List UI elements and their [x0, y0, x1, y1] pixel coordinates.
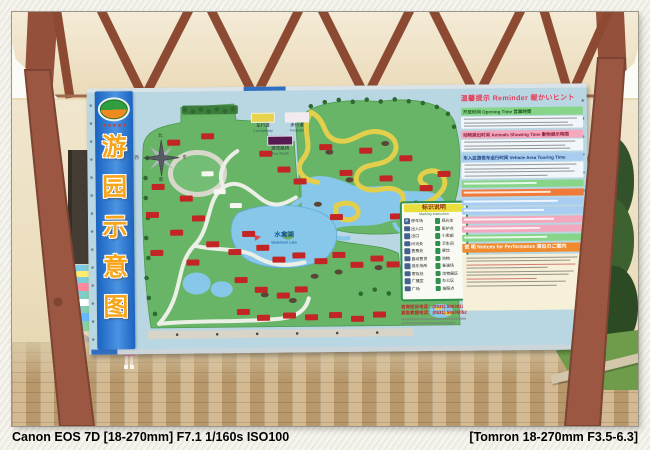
tour-route-swatch: [267, 135, 293, 145]
carriageway-entry: 车行道 Carriageway: [251, 113, 275, 133]
title-char: 园: [95, 167, 133, 207]
legend-item: 问讯处: [411, 240, 434, 246]
photo-page: { "photo_caption": { "left": "Canon EOS …: [0, 0, 650, 450]
title-char: 意: [96, 247, 134, 287]
legend-item: 出口: [411, 233, 434, 239]
text-bar: [401, 318, 466, 321]
legend-item: 自动售货: [411, 255, 434, 261]
reminder-band: [462, 179, 584, 187]
legend-item: 表演场: [442, 263, 465, 269]
legend-icon: [435, 248, 441, 254]
legend-item: 办公区: [442, 278, 465, 284]
park-logo-icon: [98, 97, 130, 121]
footpath-swatch: [285, 112, 309, 122]
legend-item: 医护点: [442, 225, 465, 231]
reminder-band: [462, 188, 584, 196]
road-type-legend: 车行道 Carriageway 步行道 Footpath 游览路线 Tour R…: [237, 112, 323, 156]
reminder-title: 温馨提示 Reminder 暖かいヒント: [461, 91, 583, 105]
legend-item: 餐饮: [442, 248, 465, 254]
reminder-band: [462, 215, 584, 223]
reminder-band: [462, 233, 584, 241]
legend-icon: [435, 278, 441, 284]
compass-rose: 北 南 东 西: [141, 138, 181, 178]
footpath-label-en: Footpath: [285, 128, 309, 132]
reminder-section-header: 开放时间 Opening Time 営業時間: [461, 106, 583, 115]
photograph: 水禽湖 Waterfowl Lake 游 园 示 意 图 北 南 东 西: [12, 12, 638, 426]
legend-item: 出入口: [411, 225, 434, 231]
title-char: 示: [96, 207, 134, 247]
legend-item: 游乐场所: [411, 263, 434, 269]
camera-exif-caption: Canon EOS 7D [18-270mm] F7.1 1/160s ISO1…: [12, 430, 289, 444]
tour-route-entry: 游览路线 Tour Route: [237, 135, 323, 156]
carriageway-swatch: [251, 113, 275, 123]
title-char: 图: [97, 287, 135, 327]
reminder-section-body: [461, 161, 583, 178]
compass-west-label: 西: [134, 155, 139, 161]
reminder-band: [462, 197, 584, 205]
legend-item: 拍照点: [442, 285, 465, 291]
reminder-section-body: [461, 138, 583, 151]
legend-icon: [404, 241, 410, 247]
compass-south-label: 南: [159, 177, 164, 183]
legend-icon: [404, 263, 410, 269]
reminder-band: [462, 206, 584, 214]
marking-legend-box: 标识说明 Marking Instruction P停车场 观光车 出入口 医护…: [400, 201, 469, 302]
compass-north-label: 北: [158, 133, 163, 139]
compass-star: [141, 138, 181, 178]
carriageway-label-en: Carriageway: [251, 129, 275, 133]
lake-label: 水禽湖: [274, 229, 294, 238]
legend-item: 购物: [442, 255, 465, 261]
marking-legend-grid: P停车场 观光车 出入口 医护点 出口 小卖部 问讯处 卫生间 售票处 餐饮 自…: [404, 218, 465, 292]
lens-caption: [Tomron 18-270mm F3.5-6.3]: [469, 430, 638, 444]
legend-item: 广场: [412, 285, 435, 291]
reminder-band: [462, 224, 584, 232]
legend-item: 观光车: [441, 218, 464, 224]
child-shoe: [124, 365, 128, 369]
reminder-section-header: 车入区游览车运行时间 Vehicle Area Touring Time: [461, 152, 583, 161]
lake-label-en: Waterfowl Lake: [271, 240, 297, 244]
parking-icon: P: [404, 218, 410, 224]
legend-item: 小卖部: [442, 233, 465, 239]
legend-icon: [404, 256, 410, 262]
legend-item: 动物展区: [442, 270, 465, 276]
title-banner: 游 园 示 意 图: [95, 91, 136, 349]
reminder-panel: 温馨提示 Reminder 暖かいヒント 开放时间 Opening Time 営…: [461, 91, 586, 344]
legend-item: 卫生间: [442, 240, 465, 246]
distant-sign: [598, 246, 608, 263]
legend-item: 售票处: [411, 248, 434, 254]
legend-item: 寄存处: [412, 270, 435, 276]
legend-icon: [435, 240, 441, 246]
legend-icon: [435, 270, 441, 276]
legend-icon: [405, 278, 411, 284]
legend-icon: [435, 285, 441, 291]
legend-icon: [435, 233, 441, 239]
bottom-road: [147, 328, 413, 339]
legend-icon: [405, 286, 411, 292]
legend-icon: [434, 218, 440, 224]
paved-ground: [12, 342, 638, 426]
legend-icon: [404, 233, 410, 239]
legend-item: 广播室: [412, 278, 435, 284]
legend-icon: [435, 225, 441, 231]
legend-item: 停车场: [411, 218, 434, 224]
legend-icon: [404, 226, 410, 232]
park-map-board: 水禽湖 Waterfowl Lake 游 园 示 意 图 北 南 东 西: [87, 83, 590, 354]
marking-legend-subtitle: Marking Instruction: [404, 212, 464, 217]
legend-icon: [404, 248, 410, 254]
legend-icon: [435, 255, 441, 261]
title-char: 游: [95, 127, 133, 167]
reminder-section-body: [461, 115, 583, 128]
reminder-section-header: 动物展出时间 Animals Showing Time 動物展示時間: [461, 129, 583, 138]
footpath-entry: 步行道 Footpath: [285, 112, 309, 132]
text-bar: [401, 322, 455, 325]
legend-icon: [405, 271, 411, 277]
compass-east-label: 东: [182, 155, 187, 161]
legend-icon: [435, 263, 441, 269]
notice-header: 说 明 Notices for Performance 演出のご案内: [462, 242, 584, 252]
notice-fineprint: [462, 253, 585, 310]
child-shoe: [130, 365, 134, 369]
post-knob: [54, 298, 63, 307]
